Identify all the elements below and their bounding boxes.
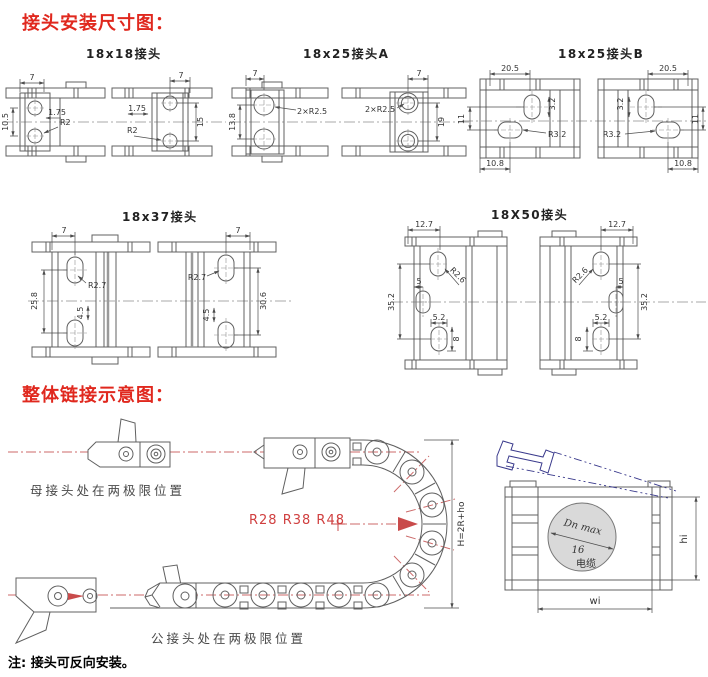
dim-label: 4.5 bbox=[202, 309, 211, 322]
assembly-diagram: H=2R+ho Dn max 16 电缆 hi wi bbox=[8, 419, 700, 643]
drawing-title-18x37: 18x37接头 bbox=[122, 208, 198, 225]
female-connector-label: 母接头处在两极限位置 bbox=[30, 480, 185, 499]
cable-size-label: 16 bbox=[572, 545, 585, 556]
male-connector-pos2 bbox=[145, 565, 197, 608]
female-connector-pos1 bbox=[88, 419, 170, 467]
view-18x25a-side: 7 2×R2.5 19 bbox=[342, 69, 466, 156]
dim-label: 35.2 bbox=[640, 293, 649, 311]
dim-label: 35.2 bbox=[387, 293, 396, 311]
centerlines-row2 bbox=[28, 301, 706, 302]
radius-arrowhead bbox=[398, 517, 418, 531]
dim-label: 13.8 bbox=[228, 113, 237, 131]
view-18x18-side: 7 1.75 R2 15 bbox=[112, 71, 212, 156]
bend-radius-options-label: R28 R38 R48 bbox=[249, 513, 345, 528]
dim-label: 11 bbox=[691, 114, 700, 124]
dim-label: 1.75 bbox=[128, 104, 146, 113]
view-18x50-right: 12.7 R2.6 5 35.2 5.2 8 bbox=[540, 220, 649, 375]
tilted-connector-outline bbox=[497, 441, 676, 498]
male-connector-label: 公接头处在两极限位置 bbox=[151, 628, 306, 647]
drawing-title-18x18: 18x18接头 bbox=[86, 45, 162, 62]
dim-label: 19 bbox=[437, 117, 446, 127]
dim-label: 5 bbox=[618, 277, 623, 286]
view-18x25b-right: 20.5 3.2 11 R3.2 10.8 bbox=[598, 64, 706, 173]
dim-label: 20.5 bbox=[659, 64, 677, 73]
dim-label: R2 bbox=[60, 118, 71, 127]
dim-label: 12.7 bbox=[608, 220, 626, 229]
dim-label: 7 bbox=[178, 71, 183, 80]
inner-width-label: wi bbox=[590, 596, 601, 607]
dim-label: R2.7 bbox=[188, 273, 206, 282]
dim-label: R2 bbox=[127, 126, 138, 135]
dim-label: 11 bbox=[457, 114, 466, 124]
dim-label: 5 bbox=[416, 277, 421, 286]
dim-label: 25.8 bbox=[30, 292, 39, 310]
view-18x50-left: 12.7 R2.6 5 35.2 5.2 8 bbox=[387, 220, 507, 375]
cable-text-label: 电缆 bbox=[576, 557, 596, 570]
dim-label: 7 bbox=[29, 73, 34, 82]
dim-label: 8 bbox=[452, 336, 461, 341]
dim-label: 10.5 bbox=[1, 113, 10, 131]
dim-label: 4.5 bbox=[76, 307, 85, 320]
connector-dimension-sheet: 接头安装尺寸图： 18x18接头 18x25接头A 18x25接头B 18x37… bbox=[0, 0, 708, 677]
dim-label: 3.2 bbox=[616, 98, 625, 111]
dim-label: 8 bbox=[574, 336, 583, 341]
dim-label: 3.2 bbox=[548, 98, 557, 111]
dim-label: R3.2 bbox=[548, 130, 566, 139]
view-18x25b-left: 20.5 3.2 11 R3.2 10.8 bbox=[457, 64, 580, 173]
view-18x37-left: 7 R2.7 25.8 4.5 bbox=[30, 226, 150, 364]
dim-label: 2×R2.5 bbox=[365, 105, 395, 114]
dim-label: 5.2 bbox=[433, 313, 446, 322]
section-heading-assembly: 整体链接示意图： bbox=[22, 381, 174, 407]
dim-label: 7 bbox=[235, 226, 240, 235]
view-18x25a-front: 7 13.8 2×R2.5 bbox=[228, 69, 328, 162]
female-connector-pos2 bbox=[254, 438, 350, 494]
dim-label: 5.2 bbox=[595, 313, 608, 322]
footnote: 注: 接头可反向安装。 bbox=[8, 652, 135, 671]
inner-height-label: hi bbox=[679, 534, 690, 543]
height-formula-label: H=2R+ho bbox=[457, 501, 467, 547]
drawing-title-18x50: 18X50接头 bbox=[491, 206, 568, 223]
dim-label: R2.6 bbox=[448, 266, 467, 285]
dim-label: R2.6 bbox=[571, 266, 590, 285]
dim-label: 30.6 bbox=[259, 292, 268, 310]
dim-label: 7 bbox=[416, 69, 421, 78]
dim-label: 20.5 bbox=[501, 64, 519, 73]
dim-label: 7 bbox=[252, 69, 257, 78]
view-18x18-front: 7 10.5 1.75 R2 bbox=[1, 73, 105, 162]
dim-label: R3.2 bbox=[603, 130, 621, 139]
dim-label: 7 bbox=[61, 226, 66, 235]
technical-drawing-canvas: 7 10.5 1.75 R2 7 1.75 R2 15 bbox=[0, 0, 708, 677]
dim-label: R2.7 bbox=[88, 281, 106, 290]
drawing-title-18x25b: 18x25接头B bbox=[558, 45, 644, 62]
dim-label: 10.8 bbox=[674, 159, 692, 168]
centerlines-row1 bbox=[2, 121, 706, 122]
view-18x37-right: 7 R2.7 30.6 4.5 bbox=[158, 226, 276, 357]
dim-label: 12.7 bbox=[415, 220, 433, 229]
dim-label: 1.75 bbox=[48, 108, 66, 117]
drawing-title-18x25a: 18x25接头A bbox=[303, 45, 389, 62]
male-connector-pos1 bbox=[16, 578, 97, 643]
section-heading-install-dims: 接头安装尺寸图： bbox=[22, 9, 174, 35]
dim-label: 2×R2.5 bbox=[297, 107, 327, 116]
cross-section: Dn max 16 电缆 hi wi bbox=[505, 481, 700, 613]
dim-label: 10.8 bbox=[486, 159, 504, 168]
dim-label: 15 bbox=[196, 117, 205, 127]
